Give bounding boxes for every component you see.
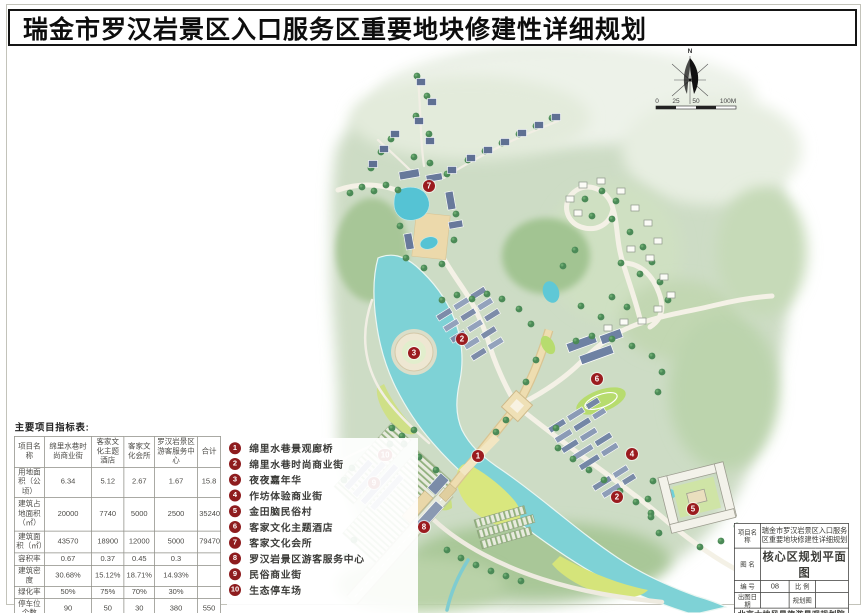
legend-item-3: 3 夜夜嘉年华 <box>229 472 365 488</box>
legend-label: 客家文化主题酒店 <box>249 520 333 534</box>
cell: 14.93% <box>155 566 198 587</box>
cell: 30 <box>124 598 155 613</box>
cell: 2500 <box>155 497 198 531</box>
indicator-table: 项目名称 绵里水巷时尚商业街 客家文化主题酒店 客家文化会所 罗汉岩景区游客服务… <box>14 436 221 613</box>
page-title: 瑞金市罗汉岩景区入口服务区重要地块修建性详细规划 <box>23 10 647 46</box>
col-header: 客家文化主题酒店 <box>92 437 124 467</box>
drawing-title-block: 项目名称 瑞金市罗汉岩景区入口服务区重要地块修建性详细规划 图 名 核心区规划平… <box>734 523 849 607</box>
scale-tick: 100M <box>720 98 736 105</box>
drawing-name: 核心区规划平面图 <box>761 548 849 580</box>
drawing-type: 规划图 <box>789 592 815 608</box>
cell: 20000 <box>44 497 91 531</box>
cell: 30% <box>155 587 198 599</box>
indicator-table-panel: 主要项目指标表: 项目名称 绵里水巷时尚商业街 客家文化主题酒店 客家文化会所 … <box>14 419 226 599</box>
page-title-bar: 瑞金市罗汉岩景区入口服务区重要地块修建性详细规划 <box>8 9 857 46</box>
legend-label: 生态停车场 <box>249 583 302 597</box>
col-header: 项目名称 <box>14 437 44 467</box>
row-label: 建筑面积（㎡） <box>14 531 44 553</box>
scale-label: 比 例 <box>789 580 815 592</box>
cell: 5000 <box>155 531 198 553</box>
row-label: 建筑密度 <box>14 566 44 587</box>
legend-label: 夜夜嘉年华 <box>249 472 302 486</box>
cell: 43570 <box>44 531 91 553</box>
legend-label: 绵里水巷景观廊桥 <box>249 441 333 455</box>
project-name: 瑞金市罗汉岩景区入口服务区重要地块修建性详细规划 <box>761 523 849 548</box>
cell: 70% <box>124 587 155 599</box>
map-marker-5: 5 <box>687 503 699 515</box>
institute-name: 北京大地风景旅游景观规划院 <box>734 608 848 613</box>
row-label: 容积率 <box>14 553 44 566</box>
cell: 2.67 <box>124 467 155 497</box>
legend-item-4: 4 作坊体验商业街 <box>229 487 365 503</box>
legend: 1 绵里水巷景观廊桥 2 绵里水巷时尚商业街 3 夜夜嘉年华 4 作坊体验商业街… <box>227 438 418 613</box>
cell: 6.34 <box>44 467 91 497</box>
cell: 50 <box>92 598 124 613</box>
legend-item-8: 8 罗汉岩景区游客服务中心 <box>229 550 365 566</box>
scale-tick: 25 <box>672 98 680 105</box>
legend-item-5: 5 金田脑民俗村 <box>229 503 365 519</box>
cell: 30.68% <box>44 566 91 587</box>
drawing-name-label: 图 名 <box>734 548 760 580</box>
cell: 50% <box>44 587 91 599</box>
col-header: 合计 <box>197 437 220 467</box>
legend-number-badge: 6 <box>229 521 241 533</box>
legend-label: 客家文化会所 <box>249 535 312 549</box>
north-label: N <box>688 48 693 55</box>
legend-number-badge: 2 <box>229 458 241 470</box>
cell: 12000 <box>124 531 155 553</box>
col-header: 绵里水巷时尚商业街 <box>44 437 91 467</box>
cell: 1.67 <box>155 467 198 497</box>
cell: 90 <box>44 598 91 613</box>
map-marker-4: 4 <box>626 448 638 460</box>
cell: 0.45 <box>124 553 155 566</box>
legend-label: 金田脑民俗村 <box>249 504 312 518</box>
map-marker-1: 1 <box>472 450 484 462</box>
legend-label: 罗汉岩景区游客服务中心 <box>249 551 365 565</box>
row-label: 停车位个数 <box>14 598 44 613</box>
cell: 5.12 <box>92 467 124 497</box>
legend-number-badge: 7 <box>229 536 241 548</box>
cell: 0.37 <box>92 553 124 566</box>
indicator-table-caption: 主要项目指标表: <box>15 419 173 433</box>
row-label: 绿化率 <box>14 587 44 599</box>
scale-value <box>815 580 848 592</box>
cell: 15.12% <box>92 566 124 587</box>
date-value <box>761 592 790 608</box>
cell <box>197 566 220 587</box>
map-marker-7: 7 <box>423 180 435 192</box>
legend-number-badge: 4 <box>229 489 241 501</box>
cell: 0.3 <box>155 553 198 566</box>
date-label: 出图日期 <box>734 592 760 608</box>
project-label: 项目名称 <box>734 523 760 548</box>
map-marker-2b: 2 <box>611 491 623 503</box>
number-label: 编 号 <box>734 580 760 592</box>
legend-number-badge: 10 <box>229 584 241 596</box>
cell <box>197 587 220 599</box>
cell: 5000 <box>124 497 155 531</box>
page: N 0 25 50 100M 1 2 2 3 4 5 6 7 8 9 10 瑞金… <box>0 0 868 613</box>
legend-number-badge: 5 <box>229 505 241 517</box>
number-value: 08 <box>761 580 790 592</box>
cell: 7740 <box>92 497 124 531</box>
map-marker-8: 8 <box>418 521 430 533</box>
legend-item-10: 10 生态停车场 <box>229 582 365 598</box>
legend-label: 民俗商业街 <box>249 567 302 581</box>
cell: 75% <box>92 587 124 599</box>
row-label: 建筑占地面积（㎡） <box>14 497 44 531</box>
legend-item-7: 7 客家文化会所 <box>229 535 365 551</box>
cell: 550 <box>197 598 220 613</box>
legend-number-badge: 9 <box>229 568 241 580</box>
legend-number-badge: 1 <box>229 442 241 454</box>
legend-item-2: 2 绵里水巷时尚商业街 <box>229 456 365 472</box>
scale-tick: 50 <box>692 98 700 105</box>
legend-label: 作坊体验商业街 <box>249 488 323 502</box>
type-extra <box>815 592 848 608</box>
legend-item-1: 1 绵里水巷景观廊桥 <box>229 440 365 456</box>
cell: 15.8 <box>197 467 220 497</box>
legend-number-badge: 3 <box>229 473 241 485</box>
cell: 18900 <box>92 531 124 553</box>
cell: 35240 <box>197 497 220 531</box>
legend-label: 绵里水巷时尚商业街 <box>249 457 344 471</box>
map-marker-6: 6 <box>591 373 603 385</box>
cell: 0.67 <box>44 553 91 566</box>
cell <box>197 553 220 566</box>
cell: 380 <box>155 598 198 613</box>
col-header: 罗汉岩景区游客服务中心 <box>155 437 198 467</box>
cell: 18.71% <box>124 566 155 587</box>
col-header: 客家文化会所 <box>124 437 155 467</box>
legend-item-9: 9 民俗商业街 <box>229 566 365 582</box>
title-block-table: 项目名称 瑞金市罗汉岩景区入口服务区重要地块修建性详细规划 图 名 核心区规划平… <box>734 523 849 613</box>
map-marker-2: 2 <box>456 333 468 345</box>
scale-tick: 0 <box>655 98 659 105</box>
legend-number-badge: 8 <box>229 552 241 564</box>
cell: 79470 <box>197 531 220 553</box>
map-marker-3: 3 <box>408 347 420 359</box>
legend-item-6: 6 客家文化主题酒店 <box>229 519 365 535</box>
row-label: 用地面积（公顷） <box>14 467 44 497</box>
